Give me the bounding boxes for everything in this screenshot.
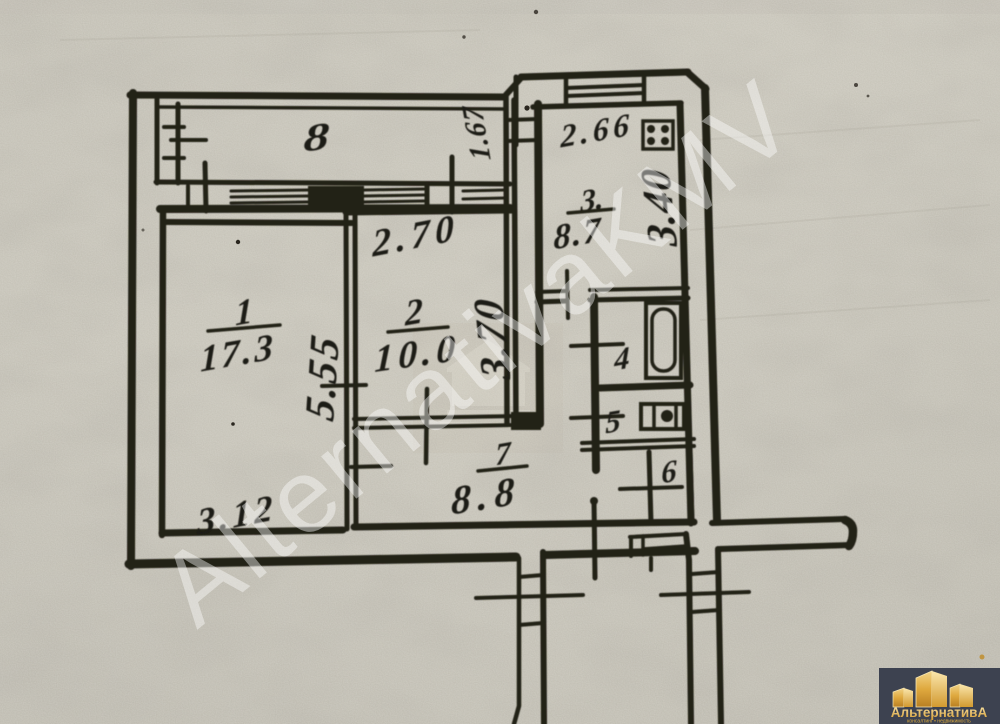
svg-text:5: 5 (605, 402, 620, 440)
svg-text:4: 4 (613, 339, 629, 377)
svg-text:8: 8 (303, 115, 330, 161)
svg-text:консалтинг • недвижимость: консалтинг • недвижимость (907, 719, 971, 724)
svg-text:6: 6 (661, 452, 677, 490)
